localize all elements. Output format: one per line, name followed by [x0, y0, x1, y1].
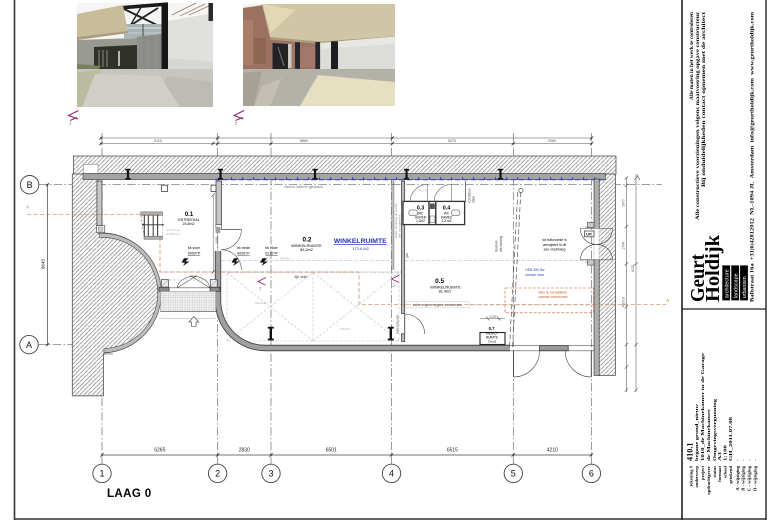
- svg-text:3085: 3085: [215, 236, 219, 243]
- svg-text:tot traforuimte is: tot traforuimte is: [542, 238, 567, 242]
- svg-text:5: 5: [511, 469, 516, 479]
- svg-text:A=250mm: A=250mm: [166, 232, 180, 236]
- svg-text:landscape: landscape: [733, 273, 739, 298]
- svg-text:staal: staal: [472, 196, 476, 203]
- svg-text:koker volgens opgave construct: koker volgens opgave constructeur: [413, 303, 463, 307]
- svg-text:A: A: [26, 340, 32, 350]
- svg-text:de Machinekamer: de Machinekamer: [706, 409, 711, 461]
- svg-text:A - wijziging: A - wijziging: [735, 465, 740, 490]
- svg-text:GH_2011.07.08: GH_2011.07.08: [728, 416, 733, 461]
- svg-text:B - wijziging: B - wijziging: [741, 465, 746, 490]
- svg-text:A3: A3: [717, 451, 722, 461]
- svg-text:5075: 5075: [448, 139, 456, 143]
- svg-text:bk vloer: bk vloer: [265, 246, 278, 250]
- svg-text:1:100: 1:100: [723, 444, 728, 461]
- svg-text:5880: 5880: [300, 139, 308, 143]
- svg-text:wanden traforuimte: wanden traforuimte: [538, 295, 567, 299]
- svg-text:Alle maten in het werk te cont: Alle maten in het werk te controleren: [690, 12, 695, 100]
- svg-text:opdrachtgever: opdrachtgever: [706, 466, 711, 495]
- svg-text:begane grond_nieuw: begane grond_nieuw: [694, 403, 699, 461]
- svg-text:1: 1: [99, 469, 104, 479]
- svg-text:D - wijziging: D - wijziging: [753, 465, 758, 491]
- svg-text:UIT: UIT: [586, 233, 593, 237]
- svg-text:nieuwe vloer: nieuwe vloer: [525, 273, 545, 277]
- svg-text:flexibele: flexibele: [495, 240, 499, 252]
- svg-text:1010_de Machinekamer in de Gar: 1010_de Machinekamer in de Garage: [700, 353, 705, 461]
- svg-text:1794: 1794: [622, 242, 626, 250]
- svg-text:verwijderd is dit: verwijderd is dit: [543, 243, 566, 247]
- svg-text:LAAG 0: LAAG 0: [107, 488, 152, 500]
- svg-text:2830: 2830: [239, 448, 250, 454]
- svg-text:onderwerp: onderwerp: [694, 466, 699, 488]
- svg-text:2: 2: [215, 469, 220, 479]
- svg-text:4827,8: 4827,8: [622, 297, 626, 307]
- svg-text:8645: 8645: [41, 258, 46, 269]
- svg-text:1,2 m2: 1,2 m2: [442, 219, 452, 223]
- svg-text:9110: 9110: [154, 139, 162, 143]
- svg-text:1,2m2: 1,2m2: [416, 219, 425, 223]
- svg-text:HEA140: HEA140: [255, 301, 267, 305]
- svg-text:6265: 6265: [154, 448, 165, 454]
- svg-text:2080: 2080: [548, 139, 556, 143]
- svg-text:formaat: formaat: [717, 466, 722, 482]
- svg-text:nieuwe dubbele gipswand: nieuwe dubbele gipswand: [284, 185, 323, 189]
- svg-text:architecture: architecture: [724, 269, 730, 298]
- svg-text:4: 4: [389, 469, 394, 479]
- svg-text:gas: gas: [405, 252, 409, 258]
- svg-text:6221: 6221: [631, 264, 635, 272]
- svg-text:schaal: schaal: [723, 465, 728, 478]
- svg-text:stalen deuren: stalen deuren: [396, 314, 400, 334]
- svg-text:stijl- en regelwerk: stijl- en regelwerk: [398, 214, 402, 238]
- svg-text:getekend: getekend: [728, 466, 733, 484]
- svg-text:2970: 2970: [622, 199, 626, 207]
- svg-text:urbanism: urbanism: [742, 276, 748, 298]
- svg-text:173,6 M2: 173,6 M2: [352, 246, 369, 251]
- svg-text:tekening #: tekening #: [688, 465, 693, 486]
- svg-text:4210: 4210: [547, 448, 558, 454]
- svg-text:3: 3: [268, 469, 273, 479]
- svg-text:Omgevingsvergunning: Omgevingsvergunning: [712, 398, 717, 461]
- svg-text:bk vloer: bk vloer: [188, 246, 201, 250]
- svg-text:89,2m2: 89,2m2: [300, 248, 313, 252]
- svg-text:Balistraat 16a +31|6|42812012: Balistraat 16a +31|6|42812012 NL-1094 JL…: [751, 11, 756, 302]
- svg-text:IPE270: IPE270: [418, 189, 428, 193]
- svg-text:0000=P: 0000=P: [188, 252, 201, 256]
- svg-text:6501: 6501: [326, 448, 337, 454]
- svg-text:HEB 360 tbv: HEB 360 tbv: [525, 268, 544, 272]
- svg-text:H: H: [586, 261, 588, 265]
- svg-text:C - wijziging: C - wijziging: [747, 465, 752, 491]
- svg-text:WINKELRUIMTE: WINKELRUIMTE: [430, 284, 461, 289]
- svg-text:later te verwijderen: later te verwijderen: [539, 290, 568, 294]
- svg-text:Bij onduidelijkheden contact o: Bij onduidelijkheden contact opnemen met…: [702, 12, 707, 187]
- svg-text:B: B: [27, 180, 33, 190]
- svg-text:IPE270: IPE270: [340, 327, 350, 331]
- svg-text:bk trede: bk trede: [237, 246, 250, 250]
- svg-text:afscheiding: afscheiding: [499, 236, 503, 252]
- svg-text:6: 6: [589, 469, 594, 479]
- svg-text:een vluchtweg: een vluchtweg: [544, 248, 566, 252]
- svg-text:WINKELRUIMTE: WINKELRUIMTE: [334, 238, 387, 245]
- svg-text:0000=P: 0000=P: [237, 252, 250, 256]
- svg-text:0210=P: 0210=P: [265, 252, 278, 256]
- svg-text:status: status: [712, 466, 717, 478]
- svg-text:0.7: 0.7: [489, 326, 495, 331]
- svg-text:3,6m2: 3,6m2: [488, 339, 497, 343]
- svg-text:6515: 6515: [447, 448, 458, 454]
- svg-text:1200: 1200: [490, 315, 497, 319]
- svg-text:25,8m2: 25,8m2: [183, 222, 195, 226]
- svg-text:Holdijk: Holdijk: [702, 234, 724, 302]
- svg-text:H: H: [586, 225, 588, 229]
- svg-text:IPE270: IPE270: [280, 256, 290, 260]
- svg-text:project: project: [700, 466, 705, 480]
- svg-text:81,4m2: 81,4m2: [439, 290, 452, 294]
- svg-text:Alle constructieve voorziening: Alle constructieve voorzieningen volgens…: [696, 11, 701, 220]
